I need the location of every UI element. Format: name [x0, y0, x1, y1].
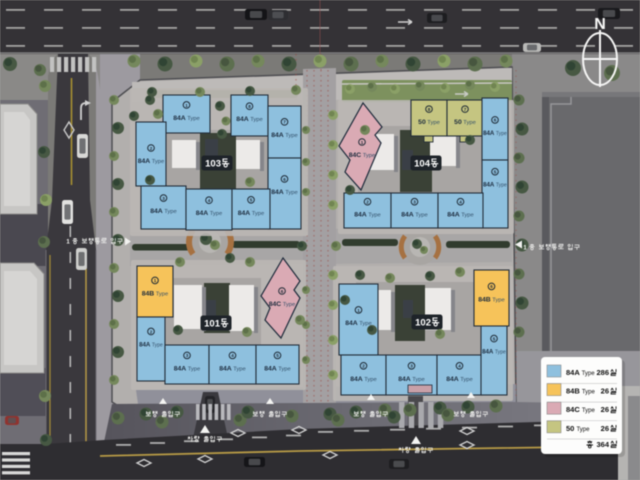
svg-text:84BType: 84BType — [478, 296, 505, 303]
svg-text:4: 4 — [459, 200, 462, 205]
svg-text:5: 5 — [250, 198, 253, 203]
svg-text:50Type: 50Type — [418, 119, 440, 126]
svg-text:84AType: 84AType — [238, 210, 265, 217]
svg-text:1: 1 — [154, 278, 157, 283]
svg-text:5: 5 — [276, 353, 279, 358]
svg-text:286: 286 — [596, 368, 609, 377]
svg-text:84AType: 84AType — [345, 320, 372, 327]
svg-text:7: 7 — [464, 107, 467, 112]
svg-text:5: 5 — [494, 169, 497, 174]
svg-text:84AType: 84AType — [271, 132, 298, 139]
svg-text:6: 6 — [283, 177, 286, 182]
svg-text:8: 8 — [248, 104, 251, 109]
svg-text:N: N — [594, 16, 606, 33]
svg-text:84AType: 84AType — [173, 115, 200, 122]
svg-text:4: 4 — [231, 353, 234, 358]
svg-text:84AType: 84AType — [483, 182, 507, 189]
svg-text:2: 2 — [150, 329, 153, 334]
svg-text:84AType: 84AType — [447, 212, 474, 219]
svg-text:102: 102 — [415, 318, 431, 329]
svg-text:84AType: 84AType — [398, 376, 425, 383]
svg-text:5: 5 — [493, 336, 496, 341]
svg-text:84AType: 84AType — [401, 212, 428, 219]
svg-text:84AType: 84AType — [138, 158, 165, 165]
svg-text:84AType: 84AType — [446, 376, 473, 383]
svg-text:3: 3 — [162, 196, 165, 201]
svg-text:84CType: 84CType — [269, 301, 296, 308]
svg-text:84AType: 84AType — [139, 341, 163, 348]
svg-text:3: 3 — [186, 353, 189, 358]
svg-text:6: 6 — [281, 289, 284, 294]
svg-text:84AType: 84AType — [350, 376, 377, 383]
svg-text:101: 101 — [204, 319, 221, 330]
svg-text:84AType: 84AType — [150, 208, 177, 215]
svg-text:26: 26 — [601, 387, 609, 396]
svg-text:3: 3 — [410, 364, 413, 369]
svg-text:84AType: 84AType — [354, 212, 381, 219]
svg-text:26: 26 — [601, 405, 609, 414]
svg-text:6: 6 — [494, 118, 497, 123]
svg-text:84BType: 84BType — [142, 290, 169, 297]
svg-text:2: 2 — [150, 146, 153, 151]
svg-text:84AType: 84AType — [174, 365, 201, 372]
svg-text:26: 26 — [601, 424, 609, 433]
svg-text:2: 2 — [362, 364, 365, 369]
svg-text:50Type: 50Type — [454, 119, 476, 126]
svg-text:3: 3 — [413, 200, 416, 205]
svg-text:84CType: 84CType — [349, 152, 376, 159]
svg-text:84AType: 84AType — [483, 130, 507, 137]
svg-text:1: 1 — [361, 140, 364, 145]
svg-text:84AType: 84AType — [482, 349, 506, 356]
svg-text:84AType: 84AType — [196, 210, 223, 217]
svg-text:2: 2 — [366, 200, 369, 205]
svg-text:8: 8 — [428, 107, 431, 112]
svg-text:4: 4 — [208, 198, 211, 203]
svg-text:4: 4 — [458, 364, 461, 369]
svg-text:1: 1 — [357, 308, 360, 313]
svg-text:84AType: 84AType — [236, 116, 263, 123]
svg-text:84AType: 84AType — [264, 365, 291, 372]
svg-text:6: 6 — [490, 284, 493, 289]
svg-text:7: 7 — [283, 120, 286, 125]
svg-text:104: 104 — [414, 159, 431, 170]
svg-text:103: 103 — [205, 159, 221, 170]
svg-text:84AType: 84AType — [271, 189, 298, 196]
svg-text:364: 364 — [596, 440, 609, 449]
svg-text:1: 1 — [185, 103, 188, 108]
svg-text:84AType: 84AType — [219, 365, 246, 372]
